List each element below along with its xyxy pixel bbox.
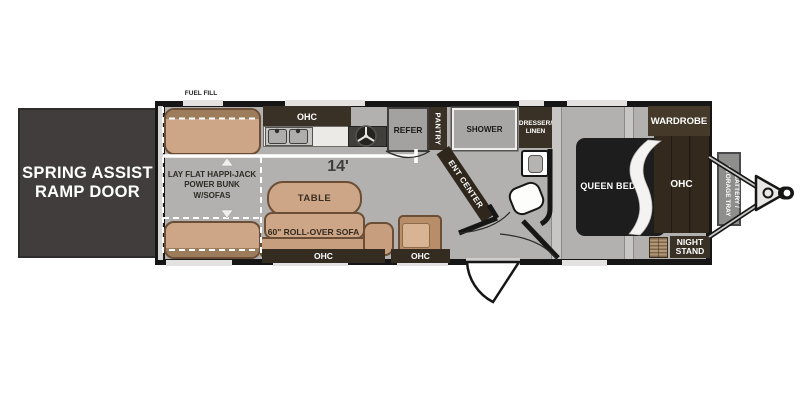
pantry-label: PANTRY (429, 107, 447, 150)
battery-storage-tray: BATTERY / STORAGE TRAY (717, 152, 741, 226)
shower-label: SHOWER (454, 110, 515, 148)
dresser-linen: DRESSER/ LINEN (519, 107, 552, 148)
window (562, 260, 607, 266)
living-ohc-left: OHC (262, 249, 385, 263)
cooktop (348, 126, 387, 147)
kitchen-ohc-cabinet: OHC (263, 106, 351, 127)
dresser-label: DRESSER/ LINEN (519, 107, 552, 148)
bedroom-ohc: OHC (654, 136, 709, 233)
armchair-seat (402, 223, 430, 248)
sink-basin (289, 129, 308, 144)
garage-sofa-bottom (164, 221, 261, 259)
window (567, 100, 627, 106)
pantry: PANTRY (429, 107, 447, 150)
sink-basin (268, 129, 287, 144)
ohc-label: OHC (391, 249, 450, 263)
floorplan-canvas: SPRING ASSIST RAMP DOOR LAY FLAT HAPPI-J… (0, 0, 800, 400)
wardrobe: WARDROBE (648, 106, 710, 136)
hitch-coupler (778, 187, 794, 200)
hitch-ball-socket (784, 190, 791, 197)
window (166, 260, 232, 266)
sofa-backrest (166, 248, 259, 257)
refrigerator: REFER (387, 107, 429, 152)
shower: SHOWER (452, 108, 517, 150)
tongue-jack-triangle (756, 176, 786, 210)
jack-wheel-icon (764, 189, 773, 198)
battery-tray-label: BATTERY / STORAGE TRAY (719, 154, 743, 228)
ohc-label: OHC (262, 249, 385, 263)
table: TABLE (267, 181, 362, 216)
queen-bed: QUEEN BED (576, 138, 666, 236)
sofa-backrest (166, 110, 259, 119)
living-ohc-right: OHC (391, 249, 450, 263)
window (183, 100, 223, 106)
dimension-label: 14' (316, 158, 360, 176)
night-stand-label: NIGHT STAND (670, 236, 710, 258)
night-stand: NIGHT STAND (670, 236, 710, 258)
table-label: TABLE (269, 183, 360, 214)
spring-assist-ramp-door: SPRING ASSIST RAMP DOOR (18, 108, 157, 258)
refer-label: REFER (389, 109, 427, 150)
bath-vanity-sink (521, 150, 549, 177)
ramp-door-label: SPRING ASSIST RAMP DOOR (20, 110, 155, 256)
bath-bedroom-wall (551, 107, 562, 259)
fuel-fill-label: FUEL FILL (174, 90, 228, 97)
ohc-label: OHC (654, 136, 709, 233)
wardrobe-label: WARDROBE (648, 106, 710, 136)
entry-door-swing (467, 262, 519, 302)
small-closet (649, 237, 668, 258)
window (519, 100, 544, 106)
queen-bed-label: QUEEN BED (578, 181, 638, 191)
power-bunk-label: LAY FLAT HAPPI-JACK POWER BUNK W/SOFAS (160, 170, 264, 201)
vanity-basin (528, 155, 543, 173)
sofa-label: 60" ROLL-OVER SOFA (262, 227, 365, 237)
garage-sofa-top (164, 108, 261, 155)
ohc-label: OHC (263, 106, 351, 127)
